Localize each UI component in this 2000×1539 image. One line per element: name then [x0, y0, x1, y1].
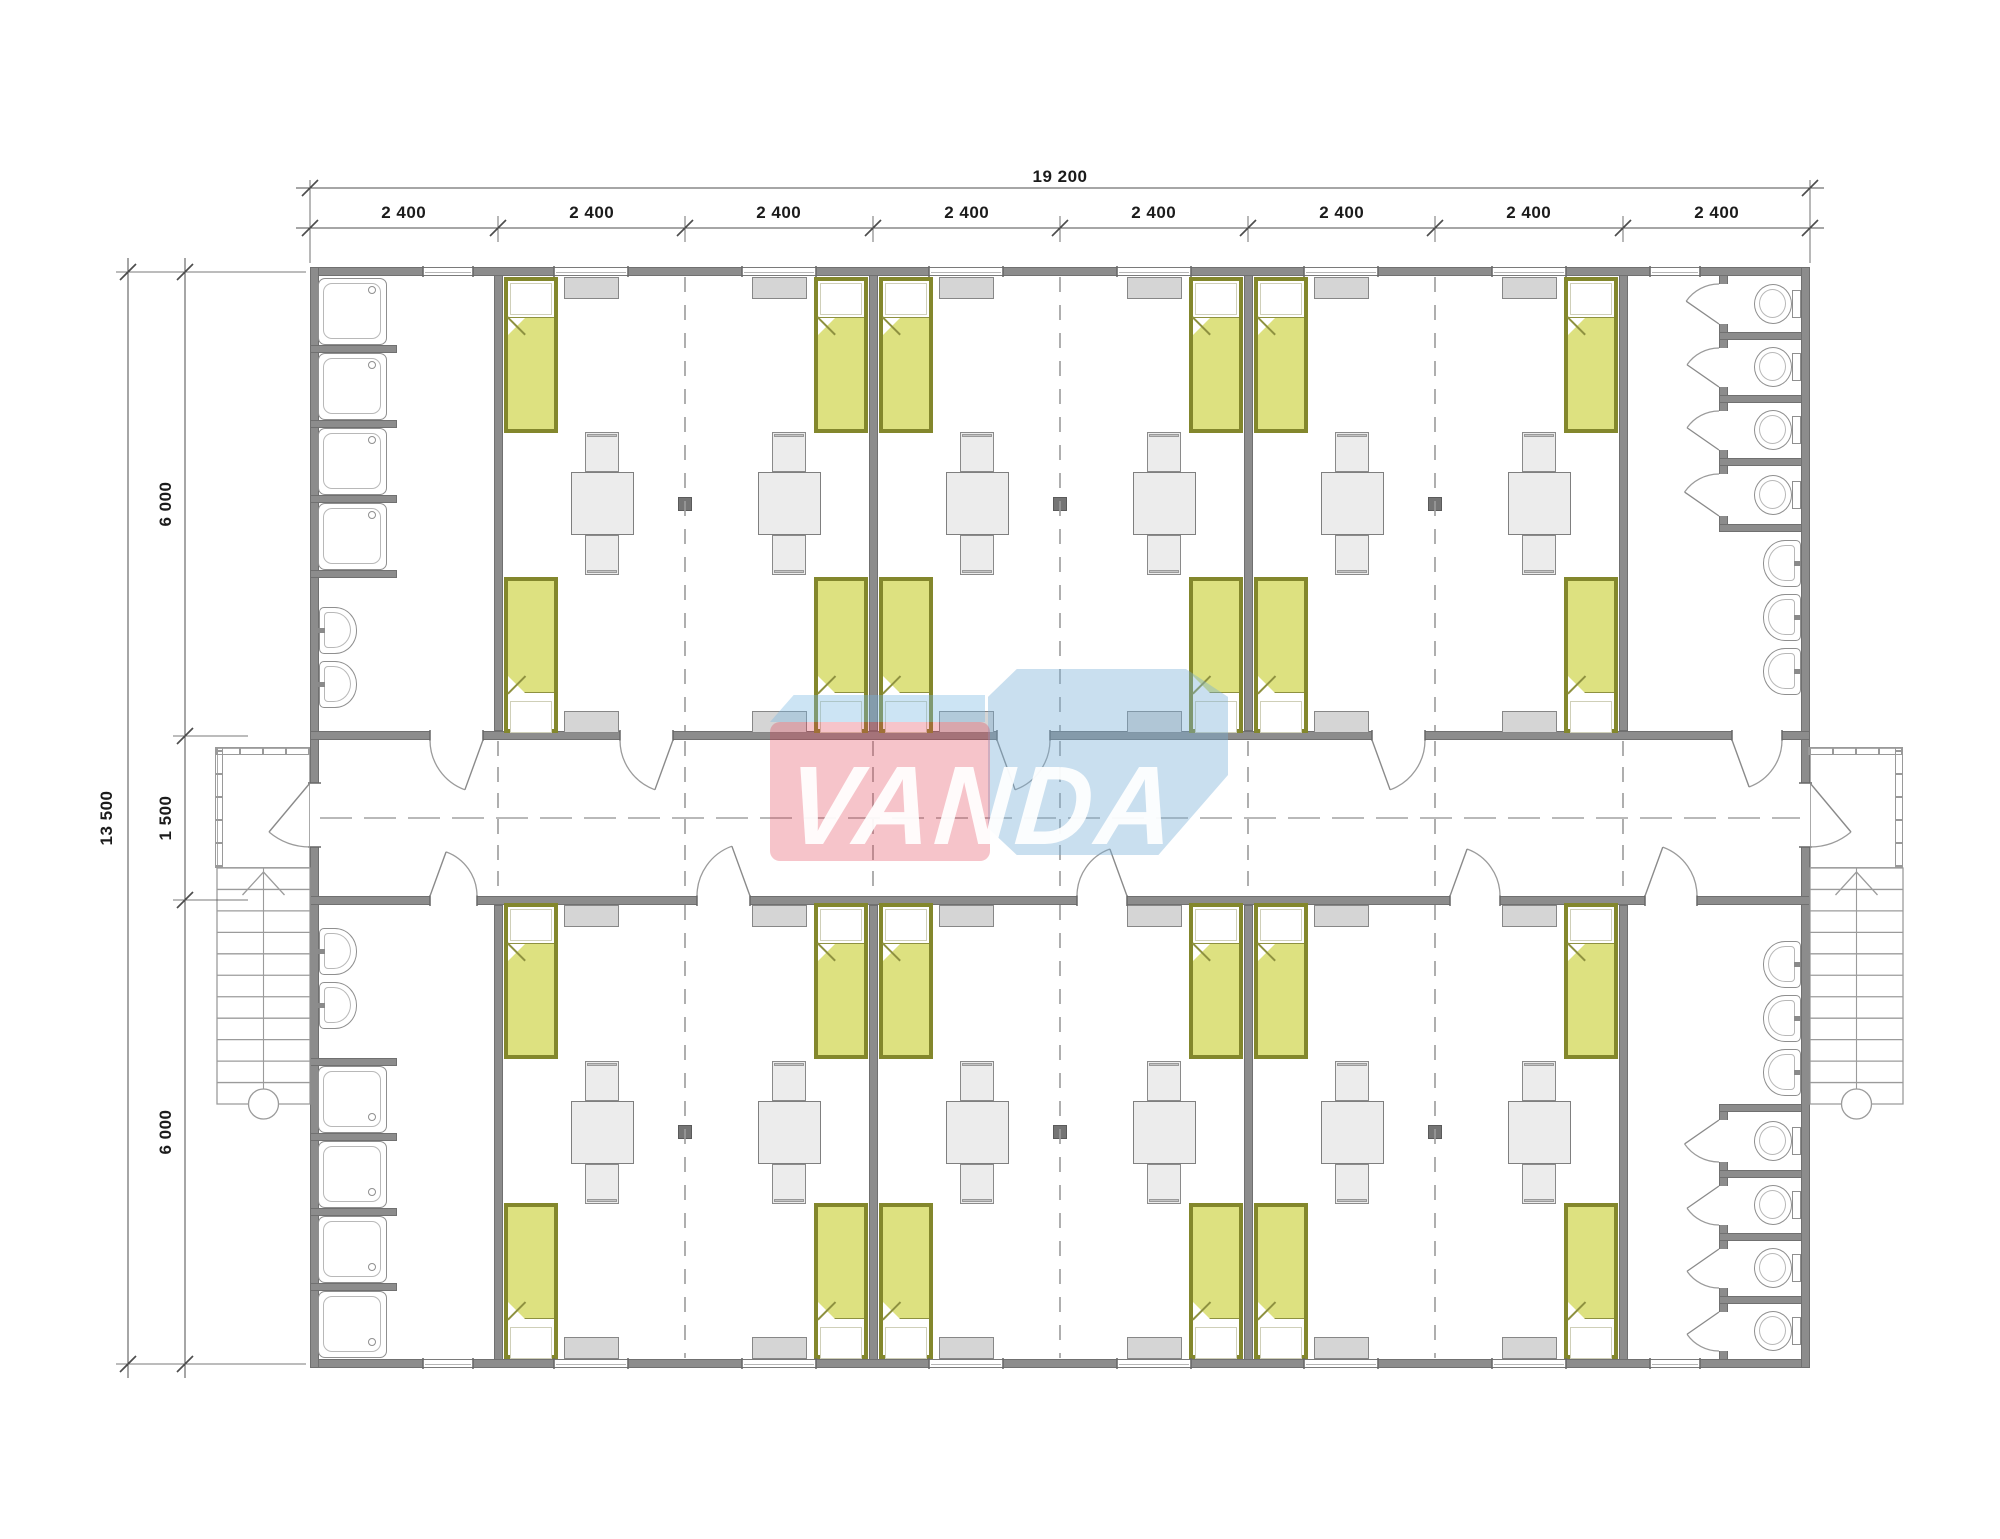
chair	[1522, 432, 1556, 472]
bed-blanket	[1568, 943, 1614, 1055]
bed-pillow	[1195, 1327, 1237, 1359]
door-leaf	[1372, 740, 1390, 790]
stall-door-arc	[1687, 1334, 1719, 1351]
bed-blanket	[508, 943, 554, 1055]
door-opening	[697, 896, 750, 906]
bed-blanket	[1258, 1207, 1304, 1319]
chair	[1522, 1061, 1556, 1101]
toilet-bowl	[1754, 1185, 1792, 1225]
table	[1133, 472, 1196, 535]
bed-blanket	[1568, 1207, 1614, 1319]
door-opening	[1077, 896, 1127, 906]
dim-module-width: 2 400	[1474, 203, 1584, 223]
door-leaf	[465, 740, 483, 790]
door-opening	[1450, 896, 1500, 906]
window	[1650, 1359, 1700, 1368]
dim-tick	[120, 264, 136, 280]
stairs-outline	[1810, 868, 1903, 1104]
table	[946, 1101, 1009, 1164]
chair	[772, 535, 806, 575]
window-glass-line	[556, 1364, 626, 1365]
bed-blanket	[883, 943, 929, 1055]
dim-module-width: 2 400	[1099, 203, 1209, 223]
column	[1428, 497, 1442, 511]
bed-pillow	[1195, 909, 1237, 941]
dim-module-width: 2 400	[912, 203, 1022, 223]
stall-divider-wall	[1719, 332, 1802, 340]
bed	[1254, 577, 1308, 733]
shower-stub-wall	[310, 495, 397, 503]
bed	[1254, 277, 1308, 433]
sink	[319, 661, 357, 708]
bed-pillow	[510, 283, 552, 315]
cabinet	[1502, 1337, 1557, 1359]
bed	[814, 903, 868, 1059]
dim-tick	[177, 728, 193, 744]
dim-tick	[1802, 180, 1818, 196]
cabinet	[1502, 711, 1557, 733]
toilet-tank	[1792, 290, 1801, 318]
bed	[1564, 277, 1618, 433]
bed-pillow	[820, 909, 862, 941]
shower	[318, 353, 387, 420]
bed-pillow	[1570, 701, 1612, 733]
bed-pillow	[885, 909, 927, 941]
cabinet	[1314, 905, 1369, 927]
bed	[1189, 903, 1243, 1059]
stall-door-arc	[1687, 348, 1719, 365]
shower-drain	[368, 511, 376, 519]
window-glass-line	[744, 1364, 814, 1365]
window-glass-line	[744, 272, 814, 273]
sink	[1763, 648, 1801, 695]
toilet-tank	[1792, 1127, 1801, 1155]
door-leaf	[655, 740, 673, 790]
stall-door-leaf	[1687, 1312, 1719, 1334]
toilet-bowl-inner	[1759, 289, 1786, 318]
bed	[504, 1203, 558, 1359]
column	[1053, 1125, 1067, 1139]
entrance-opening	[309, 783, 320, 847]
toilet-bowl	[1754, 410, 1792, 450]
bed-blanket	[883, 581, 929, 693]
chair-backrest	[1149, 1063, 1179, 1066]
sink-faucet	[318, 682, 325, 687]
bed-blanket	[818, 943, 864, 1055]
bed-blanket	[1193, 943, 1239, 1055]
bed-blanket	[1568, 317, 1614, 429]
bed-pillow	[510, 701, 552, 733]
chair	[1335, 1164, 1369, 1204]
toilet-bowl	[1754, 1311, 1792, 1351]
window	[1650, 267, 1700, 276]
shower-drain	[368, 1338, 376, 1346]
chair	[585, 1164, 619, 1204]
bed-pillow	[820, 283, 862, 315]
dim-module-width: 2 400	[537, 203, 647, 223]
stall-divider-wall	[1719, 458, 1802, 466]
shower	[318, 1291, 387, 1358]
stall-door-leaf	[1687, 1186, 1719, 1208]
sink-basin	[1768, 1054, 1795, 1090]
stall-door-arc	[1687, 411, 1719, 428]
stall-door-opening	[1718, 284, 1729, 324]
door-swing-arc	[1749, 740, 1782, 787]
stairs-up-arrow	[1836, 872, 1878, 895]
sink-faucet	[1794, 1070, 1801, 1075]
column	[678, 1125, 692, 1139]
door-swing-arc	[1467, 849, 1500, 896]
chair	[1522, 535, 1556, 575]
table	[1508, 1101, 1571, 1164]
chair-backrest	[1149, 570, 1179, 573]
table	[1321, 1101, 1384, 1164]
window	[742, 267, 816, 276]
dim-tick	[302, 220, 318, 236]
window	[1304, 267, 1378, 276]
stall-door-leaf	[1685, 1120, 1719, 1144]
door-leaf	[732, 846, 750, 896]
room-divider-wall	[1619, 275, 1628, 731]
window-glass-line	[1306, 1364, 1376, 1365]
outer-wall-top	[310, 267, 1810, 276]
shower-drain	[368, 361, 376, 369]
landing-railing	[1808, 747, 1903, 755]
chair	[772, 432, 806, 472]
bed-pillow	[510, 1327, 552, 1359]
door-swing-arc	[430, 740, 465, 790]
stall-divider-wall	[1719, 524, 1802, 532]
bed	[1189, 277, 1243, 433]
room-divider-wall	[1244, 905, 1253, 1360]
bed-blanket	[1193, 1207, 1239, 1319]
entry-landing	[1810, 748, 1903, 868]
toilet-bowl	[1754, 475, 1792, 515]
chair	[1147, 535, 1181, 575]
window-glass-line	[1494, 1364, 1564, 1365]
bed-pillow	[1570, 1327, 1612, 1359]
dim-module-width: 2 400	[1662, 203, 1772, 223]
bed-pillow	[1570, 909, 1612, 941]
shower	[318, 1141, 387, 1208]
sink	[1763, 995, 1801, 1042]
toilet-bowl-inner	[1759, 1316, 1786, 1345]
chair-backrest	[587, 434, 617, 437]
shower-stub-wall	[310, 1058, 397, 1066]
bed-pillow	[885, 283, 927, 315]
cabinet	[1314, 711, 1369, 733]
stall-divider-wall	[1719, 1104, 1802, 1112]
cabinet	[939, 1337, 994, 1359]
sink-basin	[324, 612, 351, 648]
bed-pillow	[1260, 1327, 1302, 1359]
door-leaf	[1645, 847, 1663, 896]
cabinet	[564, 711, 619, 733]
door-opening	[430, 896, 477, 906]
chair	[1147, 1061, 1181, 1101]
window	[554, 1359, 628, 1368]
chair	[1147, 432, 1181, 472]
shower-drain	[368, 1263, 376, 1271]
door-swing-arc	[446, 852, 477, 896]
bed-blanket	[508, 317, 554, 429]
sink-faucet	[318, 628, 325, 633]
bed-pillow	[1260, 283, 1302, 315]
dim-overall-height: 13 500	[97, 758, 117, 878]
stall-door-opening	[1718, 1186, 1729, 1225]
watermark-logo-text: VANDA	[783, 750, 1182, 862]
cabinet	[752, 1337, 807, 1359]
chair-backrest	[774, 1063, 804, 1066]
bed-blanket	[1193, 581, 1239, 693]
chair-backrest	[1524, 1063, 1554, 1066]
stall-divider-wall	[1719, 1296, 1802, 1304]
chair-backrest	[1337, 570, 1367, 573]
window-glass-line	[1652, 272, 1698, 273]
shower-stub-wall	[310, 570, 397, 578]
stall-door-arc	[1686, 284, 1719, 301]
bed	[1564, 903, 1618, 1059]
entry-landing	[217, 748, 310, 868]
stall-door-leaf	[1686, 301, 1719, 324]
window	[554, 267, 628, 276]
toilet-bowl-inner	[1759, 1190, 1786, 1219]
shower-drain	[368, 286, 376, 294]
shower	[318, 428, 387, 495]
table	[571, 1101, 634, 1164]
toilet-bowl-inner	[1759, 1253, 1786, 1282]
dim-module-width: 2 400	[724, 203, 834, 223]
window	[929, 267, 1003, 276]
cabinet	[752, 277, 807, 299]
chair-backrest	[1337, 1199, 1367, 1202]
sink-basin	[1768, 1000, 1795, 1036]
shower	[318, 278, 387, 345]
bed	[1564, 1203, 1618, 1359]
bed-blanket	[1568, 581, 1614, 693]
toilet-bowl	[1754, 1248, 1792, 1288]
bed-blanket	[1258, 317, 1304, 429]
room-divider-wall	[494, 275, 503, 731]
chair	[1335, 1061, 1369, 1101]
cabinet	[1314, 1337, 1369, 1359]
sink	[1763, 1049, 1801, 1096]
window-glass-line	[1119, 1364, 1189, 1365]
sink-faucet	[1794, 615, 1801, 620]
table	[758, 472, 821, 535]
window-glass-line	[1494, 272, 1564, 273]
bed-blanket	[818, 1207, 864, 1319]
window	[1492, 267, 1566, 276]
chair	[772, 1061, 806, 1101]
door-swing-arc	[620, 740, 655, 790]
chair-backrest	[1337, 434, 1367, 437]
toilet-tank	[1792, 1254, 1801, 1282]
bed	[504, 903, 558, 1059]
stall-door-arc	[1687, 1208, 1719, 1225]
door-swing-arc	[1390, 740, 1425, 790]
bed	[1254, 903, 1308, 1059]
dim-tick	[1615, 220, 1631, 236]
column	[1053, 497, 1067, 511]
dim-module-width: 2 400	[1287, 203, 1397, 223]
sink-basin	[1768, 653, 1795, 689]
chair-backrest	[962, 570, 992, 573]
table	[758, 1101, 821, 1164]
cabinet	[564, 905, 619, 927]
toilet-bowl-inner	[1759, 415, 1786, 444]
chair	[1335, 535, 1369, 575]
chair	[772, 1164, 806, 1204]
sink-basin	[1768, 599, 1795, 635]
shower-stub-wall	[310, 345, 397, 353]
shower-stub-wall	[310, 1208, 397, 1216]
dim-tick	[1427, 220, 1443, 236]
bed-blanket	[883, 1207, 929, 1319]
stall-door-opening	[1718, 1249, 1729, 1288]
bed	[879, 1203, 933, 1359]
door-leaf	[1450, 849, 1467, 896]
bed-pillow	[820, 1327, 862, 1359]
stall-divider-wall	[1719, 1233, 1802, 1241]
cabinet	[939, 277, 994, 299]
stall-door-arc	[1685, 1144, 1719, 1162]
sink-faucet	[1794, 962, 1801, 967]
shower-stub-wall	[310, 1283, 397, 1291]
landing-railing	[215, 747, 223, 868]
stall-door-leaf	[1687, 428, 1719, 450]
stall-door-opening	[1718, 474, 1729, 516]
chair-backrest	[1337, 1063, 1367, 1066]
door-leaf	[430, 852, 446, 896]
bed	[814, 277, 868, 433]
toilet-tank	[1792, 353, 1801, 381]
sink	[319, 928, 357, 975]
window-glass-line	[931, 272, 1001, 273]
column	[678, 497, 692, 511]
sink-faucet	[1794, 669, 1801, 674]
bed-pillow	[1570, 283, 1612, 315]
chair-backrest	[962, 1063, 992, 1066]
stall-door-opening	[1718, 1312, 1729, 1351]
bed	[504, 577, 558, 733]
stall-door-leaf	[1685, 492, 1719, 516]
window-glass-line	[425, 272, 471, 273]
toilet-bowl	[1754, 284, 1792, 324]
chair-backrest	[587, 1199, 617, 1202]
toilet-tank	[1792, 416, 1801, 444]
dim-tick	[865, 220, 881, 236]
bed-blanket	[1193, 317, 1239, 429]
sink	[1763, 941, 1801, 988]
chair-backrest	[587, 1063, 617, 1066]
bed-pillow	[1195, 283, 1237, 315]
sink	[1763, 540, 1801, 587]
dim-tick	[302, 180, 318, 196]
sink-basin	[324, 666, 351, 702]
cabinet	[1502, 277, 1557, 299]
sink	[1763, 594, 1801, 641]
floor-plan-sheet: 19 2002 4002 4002 4002 4002 4002 4002 40…	[0, 0, 2000, 1539]
sink-basin	[1768, 545, 1795, 581]
dim-tick	[120, 1356, 136, 1372]
toilet-bowl	[1754, 347, 1792, 387]
toilet-bowl-inner	[1759, 1126, 1786, 1155]
chair-backrest	[774, 570, 804, 573]
dim-tick	[1240, 220, 1256, 236]
table	[946, 472, 1009, 535]
toilet-tank	[1792, 1191, 1801, 1219]
sink	[319, 982, 357, 1029]
chair-backrest	[1524, 570, 1554, 573]
dim-module-width: 2 400	[349, 203, 459, 223]
bed-blanket	[508, 581, 554, 693]
stall-door-arc	[1685, 474, 1719, 492]
chair-backrest	[1524, 1199, 1554, 1202]
cabinet	[564, 277, 619, 299]
door-opening	[620, 731, 673, 741]
stall-divider-wall	[1719, 395, 1802, 403]
door-opening	[430, 731, 483, 741]
table	[1321, 472, 1384, 535]
stairs-up-arrow	[243, 872, 285, 895]
cabinet	[939, 905, 994, 927]
window	[423, 267, 473, 276]
room-divider-wall	[869, 275, 878, 731]
cabinet	[564, 1337, 619, 1359]
chair-backrest	[962, 434, 992, 437]
sink-basin	[324, 933, 351, 969]
window	[742, 1359, 816, 1368]
room-divider-wall	[494, 905, 503, 1360]
shower	[318, 1066, 387, 1133]
chair	[1522, 1164, 1556, 1204]
chair-backrest	[587, 570, 617, 573]
toilet-tank	[1792, 1317, 1801, 1345]
chair	[960, 1061, 994, 1101]
stall-door-leaf	[1687, 1249, 1719, 1271]
dim-overall-width: 19 200	[985, 167, 1135, 187]
toilet-bowl-inner	[1759, 480, 1786, 509]
chair	[585, 432, 619, 472]
window-glass-line	[1652, 1364, 1698, 1365]
window	[423, 1359, 473, 1368]
bed-blanket	[1258, 943, 1304, 1055]
dim-tick	[1052, 220, 1068, 236]
chair	[960, 535, 994, 575]
chair	[585, 1061, 619, 1101]
dim-tick	[677, 220, 693, 236]
window	[1304, 1359, 1378, 1368]
dim-tick	[177, 892, 193, 908]
sink-basin	[324, 987, 351, 1023]
table	[1133, 1101, 1196, 1164]
cabinet	[752, 905, 807, 927]
dim-tick	[490, 220, 506, 236]
shower	[318, 1216, 387, 1283]
bed-pillow	[885, 1327, 927, 1359]
bed-blanket	[818, 317, 864, 429]
sink-faucet	[318, 949, 325, 954]
chair-backrest	[1149, 1199, 1179, 1202]
window-glass-line	[931, 1364, 1001, 1365]
dim-tick	[177, 264, 193, 280]
door-opening	[1732, 731, 1782, 741]
chair	[1335, 432, 1369, 472]
window-glass-line	[1306, 272, 1376, 273]
room-divider-wall	[1244, 275, 1253, 731]
shower	[318, 503, 387, 570]
